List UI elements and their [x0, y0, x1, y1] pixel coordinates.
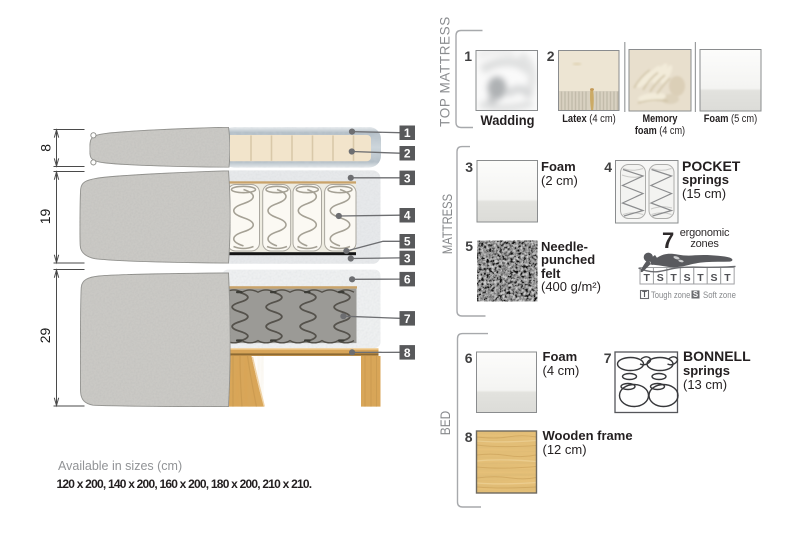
- svg-text:19: 19: [37, 209, 53, 225]
- svg-text:T: T: [697, 272, 704, 284]
- svg-text:T: T: [724, 272, 731, 284]
- svg-text:3: 3: [404, 251, 411, 265]
- svg-text:2: 2: [404, 147, 411, 161]
- svg-text:29: 29: [37, 328, 53, 344]
- svg-text:7: 7: [404, 312, 411, 326]
- svg-text:4: 4: [404, 209, 411, 223]
- svg-text:S: S: [684, 272, 691, 284]
- svg-text:1: 1: [404, 126, 411, 140]
- svg-text:3: 3: [404, 171, 411, 185]
- svg-text:8: 8: [404, 346, 411, 360]
- svg-text:T: T: [670, 272, 677, 284]
- svg-text:5: 5: [404, 235, 411, 249]
- svg-text:6: 6: [404, 273, 411, 287]
- svg-text:8: 8: [38, 144, 54, 152]
- svg-text:T: T: [643, 272, 650, 284]
- svg-text:T: T: [642, 290, 647, 299]
- svg-text:S: S: [657, 272, 664, 284]
- svg-text:S: S: [693, 290, 698, 299]
- svg-text:S: S: [710, 272, 717, 284]
